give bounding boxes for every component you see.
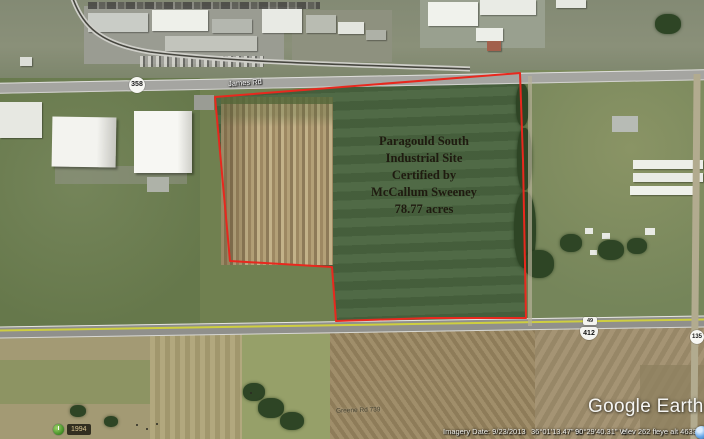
google-earth-viewport[interactable]: 358 James Rd 49 412 135 Greene Rd 739 Pa… (0, 0, 704, 439)
site-annotation-line: 78.77 acres (344, 201, 504, 218)
imagery-date: Imagery Date: 9/23/2013 (443, 427, 526, 436)
site-annotation-line: McCallum Sweeney (344, 184, 504, 201)
tree-cluster (655, 14, 681, 34)
cattle-dot (146, 428, 148, 430)
google-earth-watermark: Google Earth (588, 396, 704, 418)
building (20, 57, 32, 66)
building (476, 28, 503, 41)
building (338, 22, 364, 34)
tree-cluster (258, 398, 284, 418)
elevation-readout: elev 262 ft (622, 427, 657, 436)
building (212, 19, 252, 33)
gravel-pad (194, 95, 214, 110)
poultry-house (630, 186, 698, 195)
field-southwest-rows (0, 360, 150, 404)
warehouse-building (134, 111, 192, 173)
rail-cars (88, 2, 320, 9)
building (556, 0, 586, 8)
historical-imagery-indicator[interactable]: 1994 (53, 424, 91, 435)
building (306, 15, 336, 33)
route-shield-358: 358 (129, 77, 145, 93)
tree-cluster (280, 412, 304, 430)
tree-cluster (104, 416, 118, 427)
globe-icon (695, 426, 704, 439)
site-annotation-line: Certified by (344, 167, 504, 184)
site-annotation-line: Paragould South (344, 133, 504, 150)
tree-cluster (560, 234, 582, 252)
building (165, 36, 257, 51)
access-road (528, 76, 532, 326)
house (590, 250, 597, 255)
building (88, 13, 148, 32)
building (428, 2, 478, 26)
building (480, 0, 536, 15)
house (585, 228, 593, 234)
site-annotation: Paragould South Industrial Site Certifie… (344, 133, 504, 218)
field-southwest-striped (150, 334, 242, 439)
building (0, 102, 42, 138)
route-shield-49: 49 (583, 317, 597, 325)
warehouse-building (52, 116, 117, 167)
tree-cluster (70, 405, 86, 417)
outbuilding (147, 177, 169, 192)
route-shield-135: 135 (690, 330, 704, 344)
plowed-field-shading (221, 97, 333, 265)
latitude-readout: 36°01'13.47" N (531, 427, 581, 436)
parking-lot-cars (140, 56, 264, 67)
cattle-dot (250, 392, 252, 394)
tree-cluster (243, 383, 265, 401)
building-red-roof (487, 41, 501, 51)
cattle-dot (136, 424, 138, 426)
tree-cluster (598, 240, 624, 260)
house (645, 228, 655, 235)
house (602, 233, 610, 239)
history-year-badge[interactable]: 1994 (67, 424, 91, 435)
site-annotation-line: Industrial Site (344, 150, 504, 167)
building (366, 30, 386, 40)
building (262, 7, 302, 33)
field-east-green (520, 70, 704, 332)
building (152, 10, 208, 31)
field-south-plowed (330, 325, 535, 439)
tree-cluster (627, 238, 647, 254)
longitude-readout: 90°29'40.31" W (575, 427, 627, 436)
building (612, 116, 638, 132)
history-clock-icon[interactable] (53, 424, 64, 435)
cattle-dot (156, 423, 158, 425)
